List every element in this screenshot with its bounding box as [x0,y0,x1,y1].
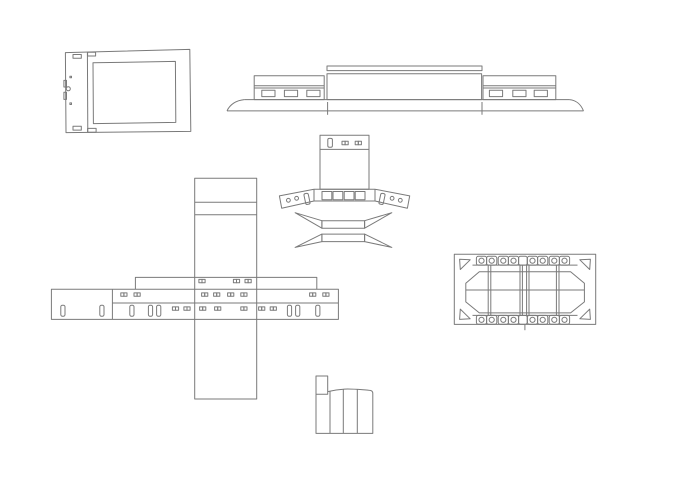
right-flare [569,100,583,111]
drawing-page [0,0,679,480]
hood-slot [328,138,333,147]
bracket-marks [199,279,251,282]
bowtie-strip-lower [295,234,392,247]
part-back-panel [64,49,191,132]
part-hood-unfold [279,135,409,247]
left-pod-windows [262,90,320,96]
part-chassis-plate [454,254,595,330]
inner-octagon [466,272,585,313]
mast-column [195,178,257,399]
hood-band [279,189,409,208]
part-mast-cross [51,178,338,399]
strip-bracket [135,277,316,289]
left-flare [227,100,244,111]
top-bar [327,66,482,71]
bowtie-strip-upper [295,213,392,229]
corner-gussets [460,259,591,319]
strip-marks-upper [121,293,329,296]
top-hole-tabs [476,256,569,265]
part-roof-profile [227,66,584,115]
drawing-canvas [0,0,679,480]
right-pod-windows [489,90,547,96]
bottom-hole-tabs [476,315,569,324]
bracket-tab [316,376,328,394]
bracket-body [316,389,373,433]
panel-side-details [64,76,72,104]
center-box [327,74,482,100]
screen-cutout [93,61,176,123]
part-curved-bracket [316,376,373,433]
strip-marks-lower [172,307,276,310]
